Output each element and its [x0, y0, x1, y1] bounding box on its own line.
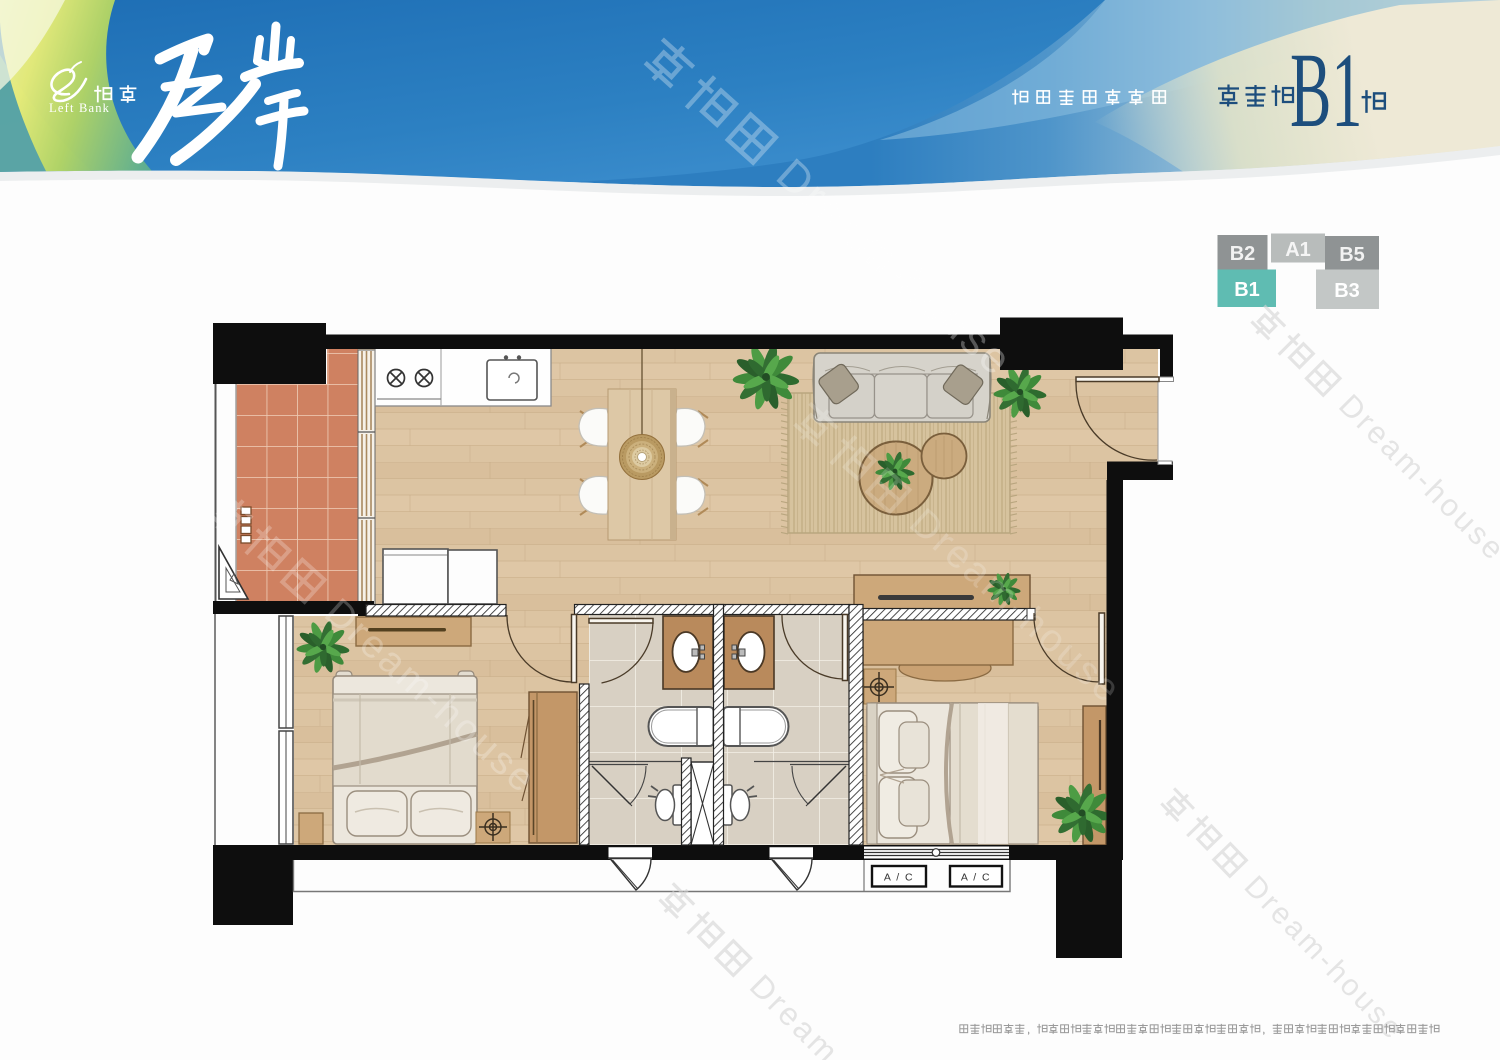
svg-text:A1: A1 — [1285, 239, 1311, 261]
svg-text:B1: B1 — [1290, 31, 1362, 150]
svg-text:B5: B5 — [1339, 244, 1365, 266]
svg-text:B2: B2 — [1230, 243, 1256, 265]
svg-text:B1: B1 — [1234, 279, 1260, 301]
svg-text:Dream-house: Dream-house — [1332, 387, 1500, 568]
svg-text:A / C: A / C — [884, 872, 914, 884]
svg-text:Dream-house: Dream-house — [743, 967, 929, 1060]
svg-text:A / C: A / C — [961, 872, 991, 884]
svg-text:Dream-house: Dream-house — [1238, 870, 1411, 1047]
svg-text:B3: B3 — [1334, 280, 1360, 302]
svg-text:Left Bank: Left Bank — [49, 101, 110, 115]
